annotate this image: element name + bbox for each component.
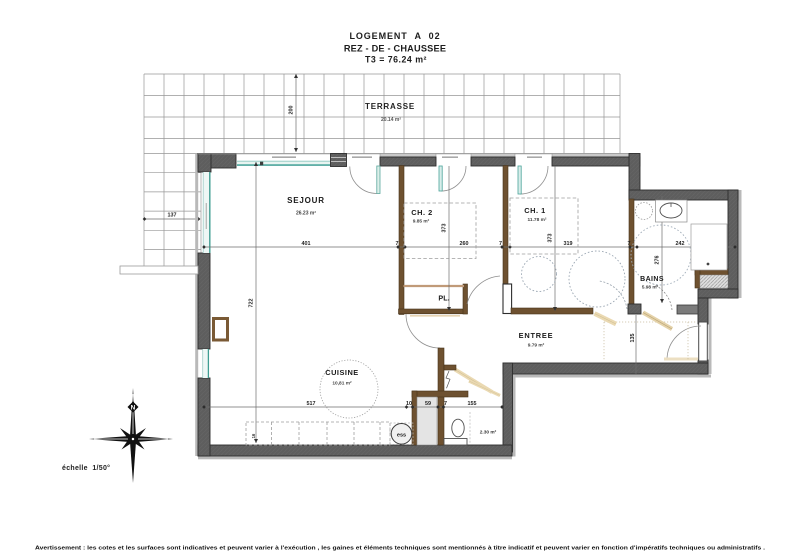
svg-text:REZ - DE - CHAUSSEE: REZ - DE - CHAUSSEE bbox=[344, 44, 446, 54]
svg-text:5.98 m²: 5.98 m² bbox=[642, 285, 659, 291]
svg-text:N: N bbox=[131, 405, 136, 412]
svg-text:10: 10 bbox=[406, 401, 412, 407]
svg-text:155: 155 bbox=[468, 401, 477, 407]
svg-text:9.79 m²: 9.79 m² bbox=[528, 343, 545, 349]
svg-text:TERRASSE: TERRASSE bbox=[365, 102, 415, 111]
svg-text:échelle 1/50°: échelle 1/50° bbox=[62, 464, 110, 472]
svg-text:ess: ess bbox=[397, 432, 406, 438]
svg-text:Avertissement : les cotes et l: Avertissement : les cotes et les surface… bbox=[35, 546, 765, 552]
svg-text:T3 = 76.24 m²: T3 = 76.24 m² bbox=[365, 55, 427, 65]
svg-text:BAINS: BAINS bbox=[640, 276, 664, 283]
svg-text:373: 373 bbox=[548, 234, 554, 243]
svg-text:7: 7 bbox=[628, 241, 631, 247]
svg-text:59: 59 bbox=[425, 401, 431, 407]
svg-text:135: 135 bbox=[630, 334, 636, 343]
svg-text:2.30 m²: 2.30 m² bbox=[480, 430, 497, 436]
svg-text:7: 7 bbox=[444, 401, 447, 407]
svg-text:401: 401 bbox=[302, 241, 311, 247]
svg-text:LOGEMENT A 02: LOGEMENT A 02 bbox=[349, 31, 440, 41]
svg-text:CH. 2: CH. 2 bbox=[411, 208, 432, 217]
svg-text:200: 200 bbox=[289, 106, 295, 115]
svg-text:10,81 m²: 10,81 m² bbox=[332, 381, 352, 387]
svg-text:9.85 m²: 9.85 m² bbox=[413, 219, 430, 225]
svg-text:26.23 m²: 26.23 m² bbox=[296, 211, 316, 217]
svg-text:319: 319 bbox=[564, 241, 573, 247]
svg-text:CUISINE: CUISINE bbox=[325, 368, 358, 377]
svg-text:11.78 m²: 11.78 m² bbox=[528, 217, 547, 223]
svg-text:CH. 1: CH. 1 bbox=[524, 206, 545, 215]
svg-text:7: 7 bbox=[396, 241, 399, 247]
svg-text:260: 260 bbox=[460, 241, 469, 247]
svg-text:20.14 m²: 20.14 m² bbox=[381, 117, 401, 123]
svg-text:SEJOUR: SEJOUR bbox=[287, 196, 325, 205]
svg-text:373: 373 bbox=[442, 224, 448, 233]
svg-text:16: 16 bbox=[251, 433, 256, 438]
svg-text:517: 517 bbox=[307, 401, 316, 407]
svg-text:PL.: PL. bbox=[438, 294, 449, 303]
svg-text:722: 722 bbox=[249, 299, 255, 308]
svg-text:276: 276 bbox=[655, 256, 661, 265]
svg-text:242: 242 bbox=[676, 241, 685, 247]
svg-text:7: 7 bbox=[499, 241, 502, 247]
svg-text:ENTREE: ENTREE bbox=[519, 331, 554, 340]
svg-text:137: 137 bbox=[168, 213, 177, 219]
